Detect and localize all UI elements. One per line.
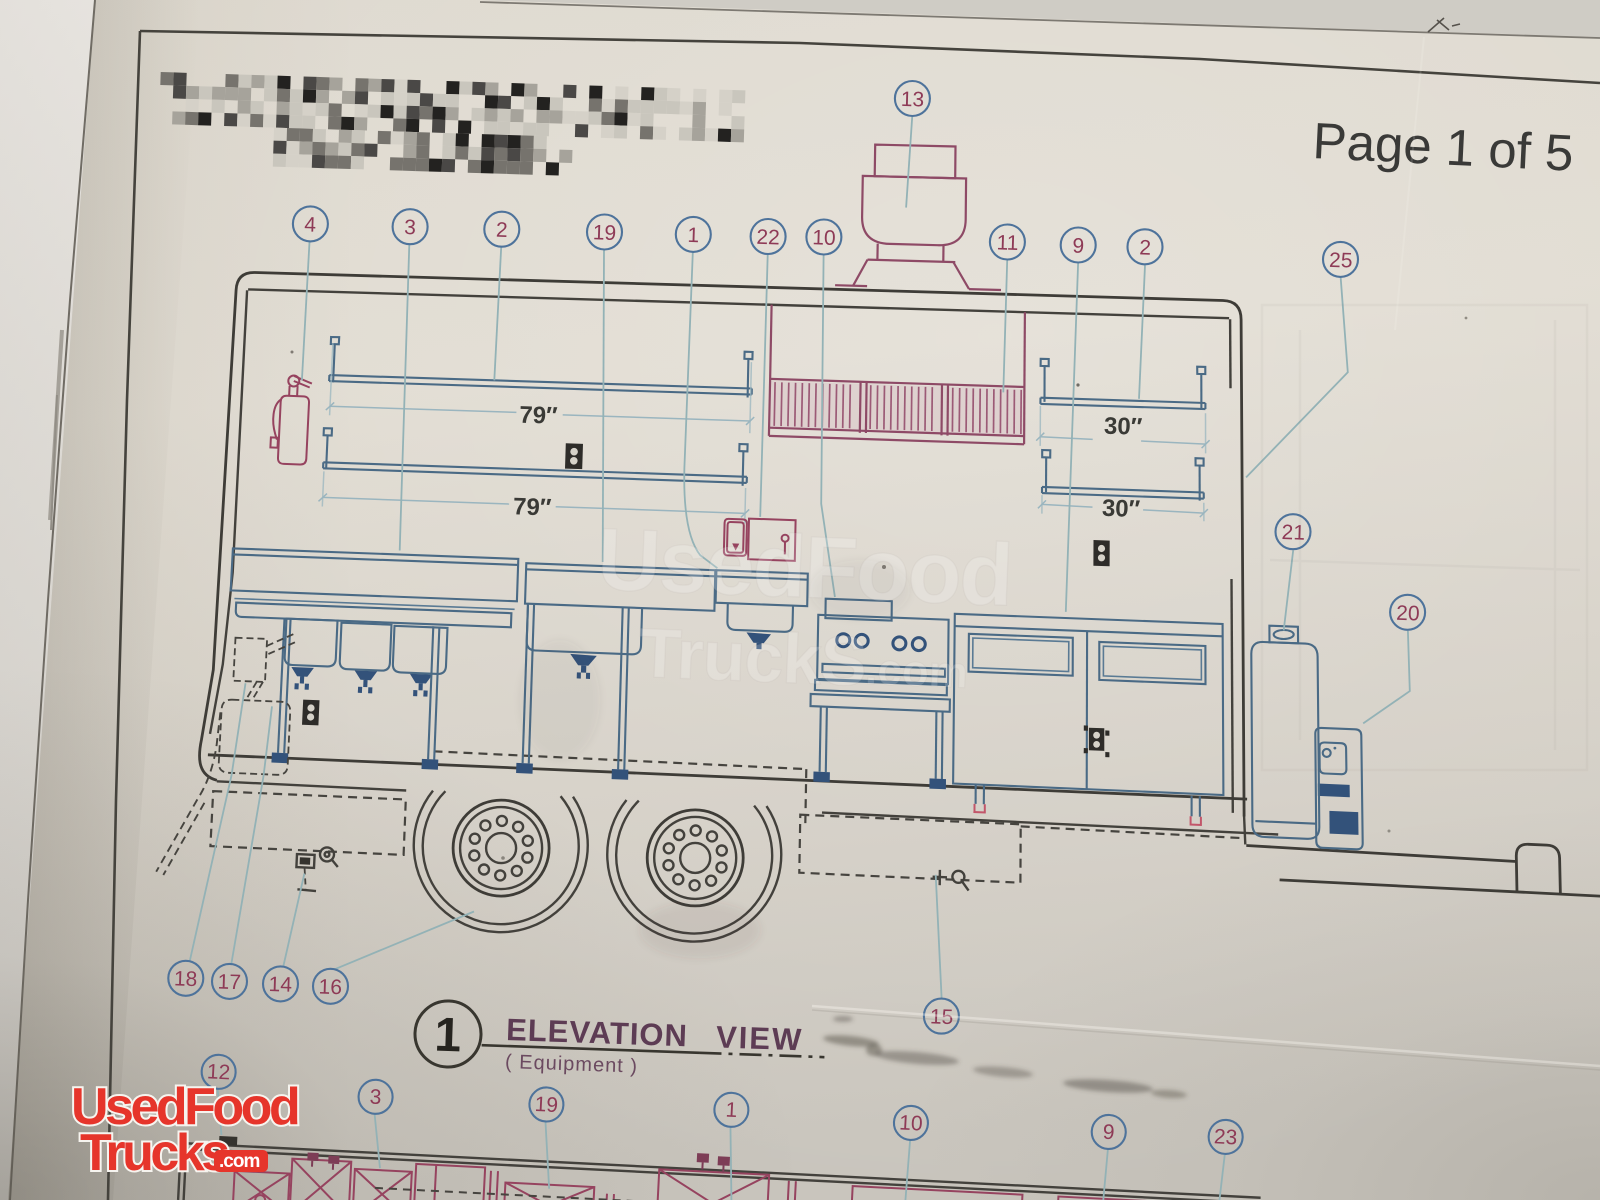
svg-text:.com: .com <box>219 1151 259 1172</box>
svg-text:17: 17 <box>217 971 241 995</box>
svg-text:Trucks: Trucks <box>80 1124 228 1182</box>
svg-text:.com: .com <box>864 645 969 698</box>
svg-text:23: 23 <box>1213 1125 1237 1149</box>
svg-text:10: 10 <box>812 226 836 250</box>
svg-text:2: 2 <box>1139 236 1151 259</box>
svg-text:2: 2 <box>496 219 508 242</box>
svg-text:( Equipment ): ( Equipment ) <box>505 1051 639 1078</box>
svg-text:30″: 30″ <box>1102 495 1142 523</box>
svg-text:19: 19 <box>534 1093 558 1117</box>
svg-text:79″: 79″ <box>519 402 559 430</box>
svg-text:10: 10 <box>899 1111 923 1135</box>
svg-text:1: 1 <box>434 1009 463 1063</box>
svg-text:19: 19 <box>592 221 616 245</box>
svg-text:VIEW: VIEW <box>715 1019 803 1057</box>
svg-text:13: 13 <box>900 88 924 112</box>
svg-text:1: 1 <box>725 1099 738 1123</box>
svg-text:3: 3 <box>369 1086 382 1110</box>
svg-text:TruckS: TruckS <box>637 614 867 701</box>
svg-text:ELEVATION: ELEVATION <box>506 1012 689 1053</box>
svg-text:9: 9 <box>1072 235 1084 258</box>
svg-text:21: 21 <box>1281 521 1305 545</box>
svg-text:9: 9 <box>1102 1121 1115 1145</box>
svg-text:16: 16 <box>318 976 342 1000</box>
svg-text:3: 3 <box>404 216 416 239</box>
svg-text:22: 22 <box>756 226 780 250</box>
svg-text:14: 14 <box>268 973 292 997</box>
svg-text:20: 20 <box>1396 602 1420 626</box>
svg-text:4: 4 <box>304 213 317 236</box>
svg-text:30″: 30″ <box>1104 413 1144 441</box>
svg-text:1: 1 <box>687 224 699 247</box>
svg-text:79″: 79″ <box>513 493 553 521</box>
svg-text:25: 25 <box>1329 249 1353 273</box>
svg-text:UsedFood: UsedFood <box>596 509 1014 625</box>
svg-text:11: 11 <box>996 231 1019 255</box>
svg-text:18: 18 <box>174 967 198 991</box>
